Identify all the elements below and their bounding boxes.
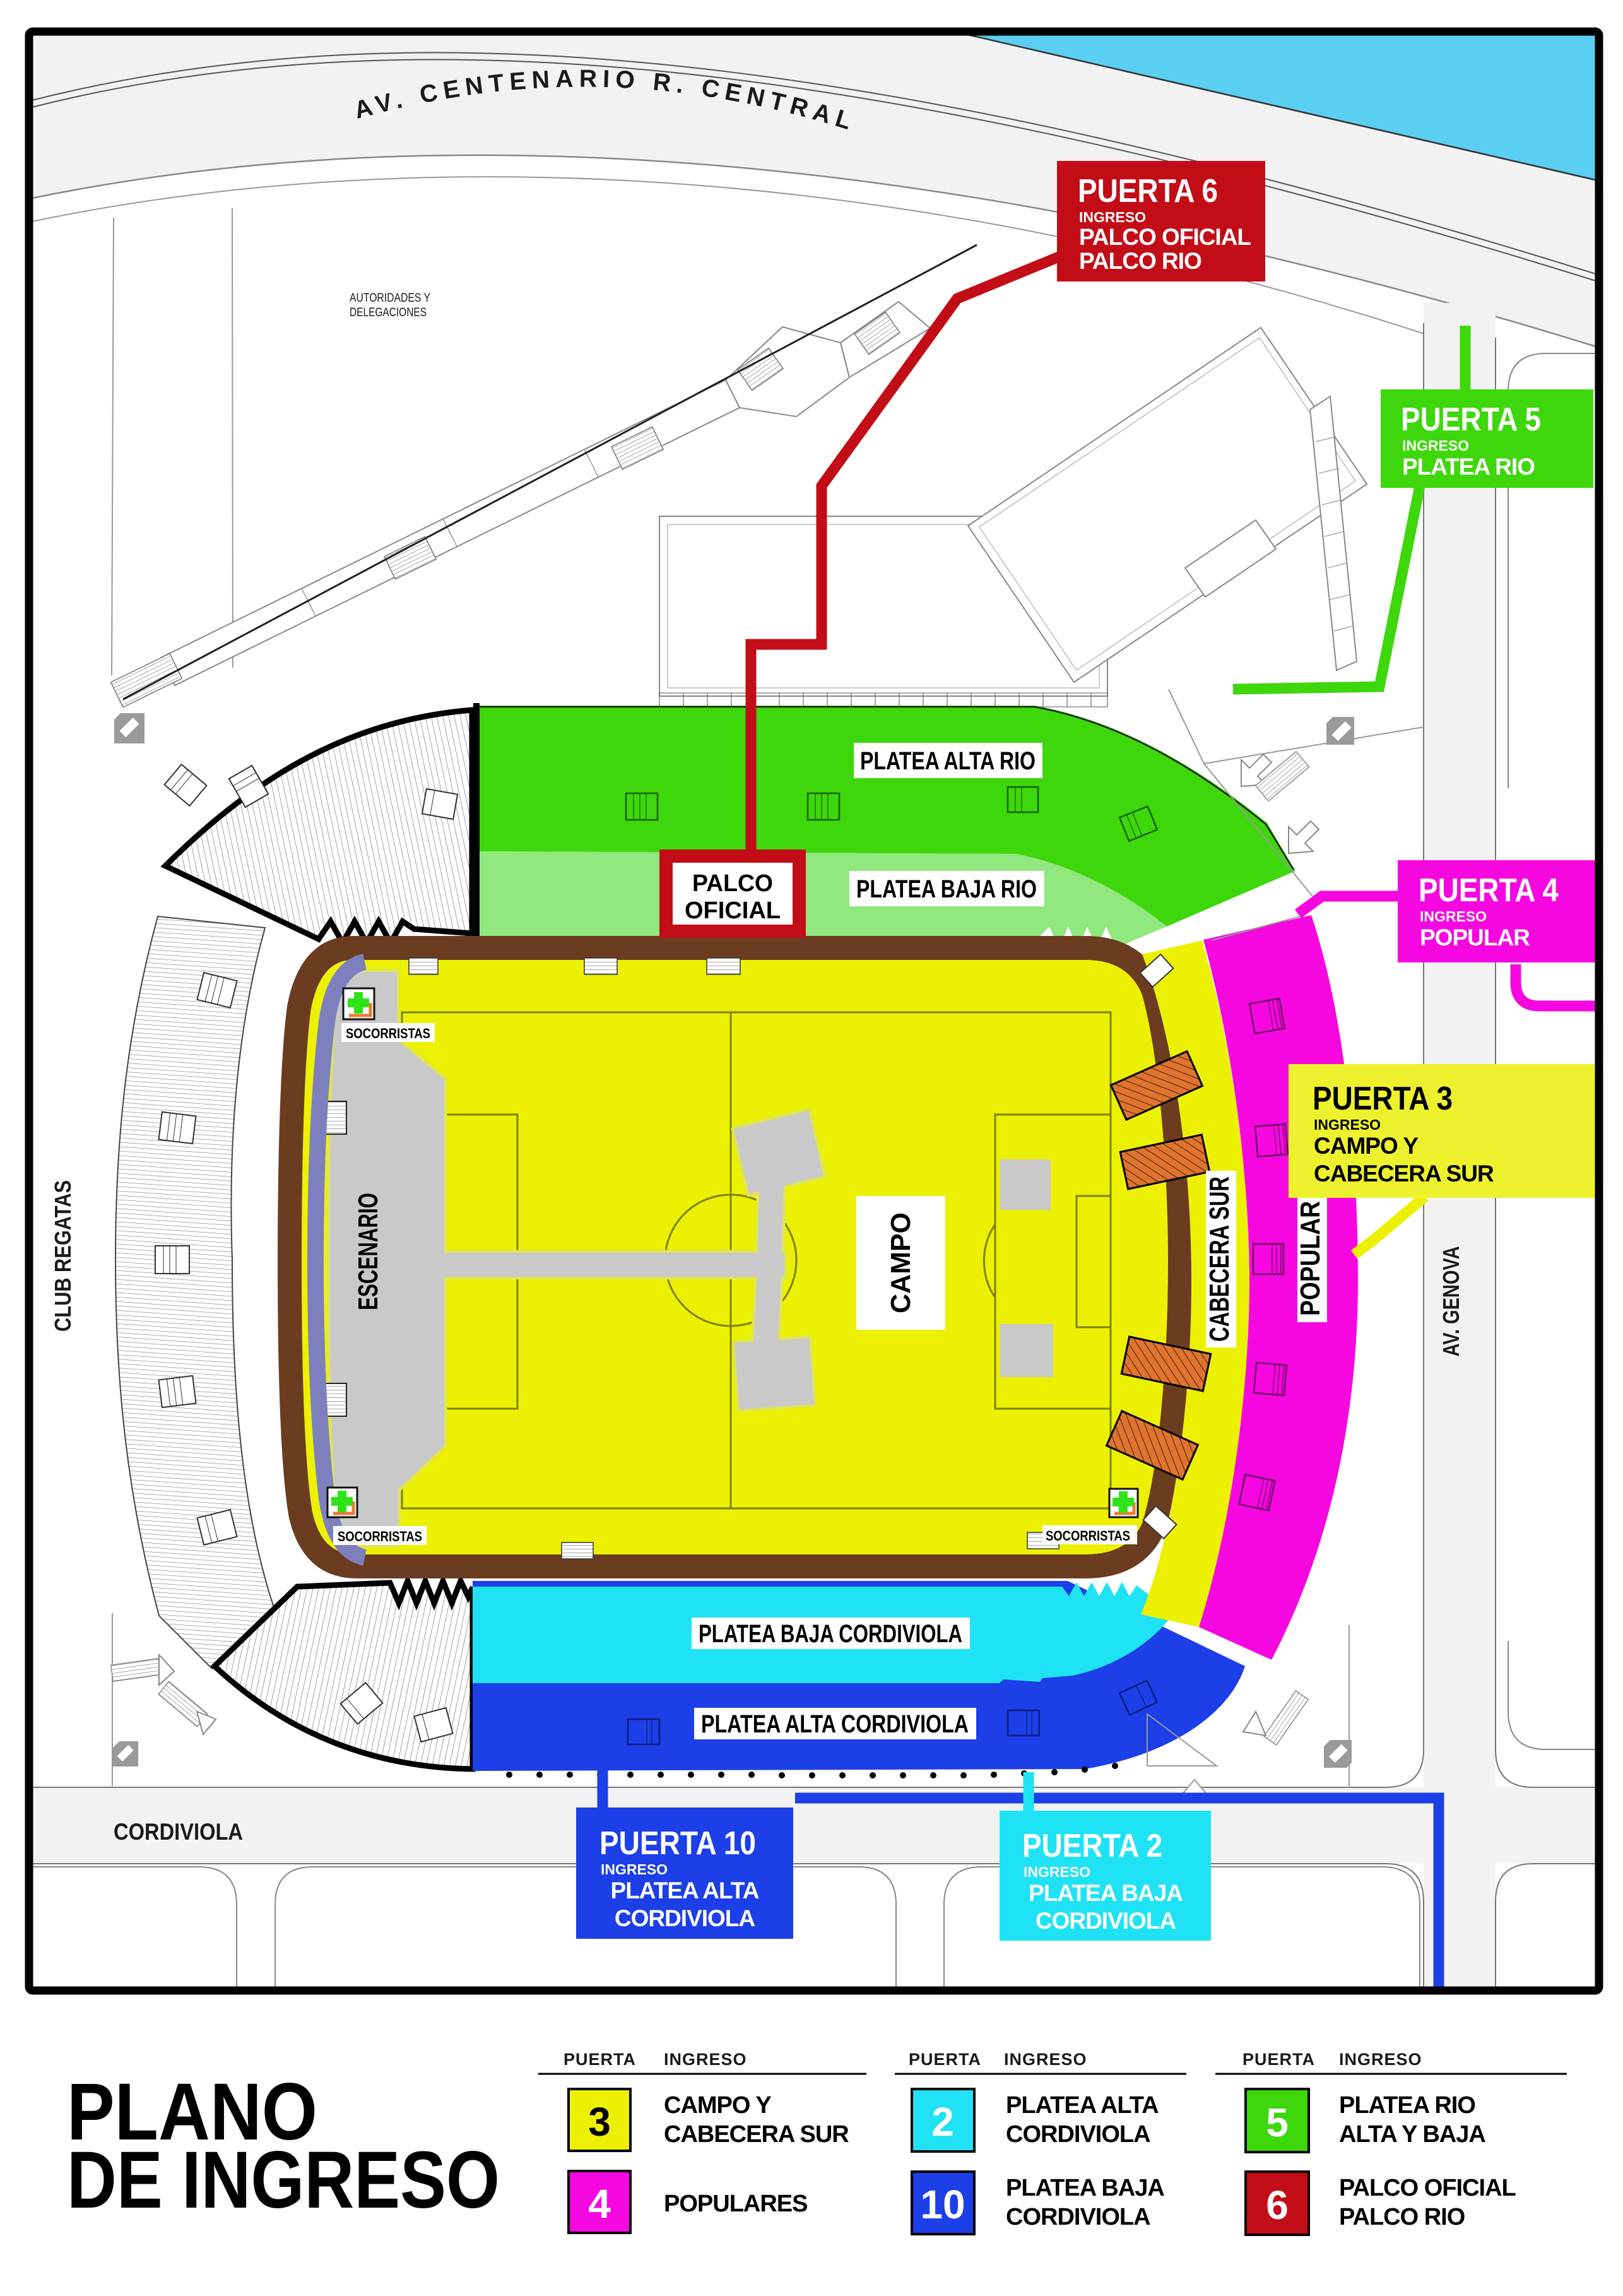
svg-text:AUTORIDADES Y: AUTORIDADES Y [350, 292, 430, 305]
svg-text:INGRESO: INGRESO [1004, 2050, 1087, 2069]
svg-text:CORDIVIOLA: CORDIVIOLA [114, 1819, 243, 1845]
svg-text:ESCENARIO: ESCENARIO [353, 1193, 384, 1310]
svg-text:CORDIVIOLA: CORDIVIOLA [1006, 2121, 1150, 2148]
svg-text:CABECERA SUR: CABECERA SUR [664, 2121, 849, 2148]
svg-text:INGRESO: INGRESO [1339, 2050, 1422, 2069]
svg-text:INGRESO: INGRESO [1314, 1116, 1381, 1133]
svg-text:SOCORRISTAS: SOCORRISTAS [346, 1026, 430, 1041]
svg-text:PALCO OFICIAL: PALCO OFICIAL [1079, 224, 1251, 250]
svg-text:CORDIVIOLA: CORDIVIOLA [1036, 1908, 1176, 1934]
svg-text:CABECERA SUR: CABECERA SUR [1314, 1161, 1494, 1186]
svg-text:2: 2 [931, 2099, 954, 2145]
svg-text:DE INGRESO: DE INGRESO [67, 2135, 500, 2225]
svg-text:PALCO RIO: PALCO RIO [1079, 248, 1201, 274]
svg-text:POPULARES: POPULARES [664, 2191, 807, 2217]
svg-text:10: 10 [920, 2182, 965, 2227]
svg-text:3: 3 [588, 2099, 611, 2145]
svg-text:SOCORRISTAS: SOCORRISTAS [1046, 1528, 1130, 1544]
svg-text:INGRESO: INGRESO [1402, 437, 1469, 454]
svg-text:CLUB REGATAS: CLUB REGATAS [50, 1180, 76, 1332]
svg-text:CORDIVIOLA: CORDIVIOLA [1006, 2204, 1150, 2230]
svg-text:PLATEA RIO: PLATEA RIO [1402, 454, 1535, 480]
svg-text:5: 5 [1266, 2100, 1289, 2145]
svg-text:PALCO: PALCO [692, 870, 773, 897]
svg-text:PUERTA 10: PUERTA 10 [599, 1825, 756, 1862]
svg-text:CAMPO Y: CAMPO Y [664, 2092, 771, 2119]
svg-text:PALCO RIO: PALCO RIO [1339, 2204, 1465, 2230]
svg-text:INGRESO: INGRESO [1420, 908, 1487, 925]
svg-text:SOCORRISTAS: SOCORRISTAS [338, 1529, 422, 1544]
svg-text:PLATEA RIO: PLATEA RIO [1339, 2092, 1475, 2119]
svg-text:PLATEA ALTA: PLATEA ALTA [611, 1878, 759, 1903]
svg-text:INGRESO: INGRESO [601, 1861, 668, 1878]
svg-text:PLATEA BAJA CORDIVIOLA: PLATEA BAJA CORDIVIOLA [699, 1620, 962, 1648]
svg-text:PUERTA: PUERTA [1242, 2050, 1315, 2069]
svg-text:PUERTA 5: PUERTA 5 [1401, 401, 1541, 438]
svg-text:PUERTA 3: PUERTA 3 [1313, 1080, 1453, 1117]
svg-text:INGRESO: INGRESO [1079, 209, 1146, 225]
svg-text:POPULAR: POPULAR [1295, 1201, 1326, 1316]
svg-text:PLATEA BAJA RIO: PLATEA BAJA RIO [856, 875, 1037, 903]
svg-text:POPULAR: POPULAR [1420, 925, 1530, 950]
svg-text:PUERTA 2: PUERTA 2 [1022, 1828, 1162, 1864]
svg-text:PLATEA ALTA: PLATEA ALTA [1006, 2092, 1159, 2119]
svg-text:PUERTA 4: PUERTA 4 [1419, 872, 1559, 909]
svg-text:PLATEA BAJA: PLATEA BAJA [1029, 1880, 1183, 1906]
svg-text:DELEGACIONES: DELEGACIONES [350, 306, 427, 319]
svg-text:INGRESO: INGRESO [664, 2050, 747, 2069]
svg-text:PUERTA: PUERTA [564, 2050, 636, 2069]
svg-text:CORDIVIOLA: CORDIVIOLA [615, 1905, 755, 1931]
svg-text:PALCO OFICIAL: PALCO OFICIAL [1339, 2175, 1516, 2201]
svg-text:PLATEA ALTA CORDIVIOLA: PLATEA ALTA CORDIVIOLA [701, 1710, 969, 1738]
svg-text:PUERTA: PUERTA [909, 2050, 981, 2069]
svg-text:6: 6 [1266, 2182, 1289, 2228]
svg-text:OFICIAL: OFICIAL [685, 897, 781, 924]
svg-text:INGRESO: INGRESO [1024, 1864, 1090, 1880]
svg-text:PLATEA ALTA RIO: PLATEA ALTA RIO [860, 747, 1036, 775]
svg-text:CAMPO Y: CAMPO Y [1314, 1133, 1419, 1159]
svg-text:4: 4 [588, 2181, 611, 2227]
svg-text:AV. GENOVA: AV. GENOVA [1438, 1246, 1464, 1357]
svg-text:PUERTA 6: PUERTA 6 [1078, 173, 1218, 210]
svg-text:PLATEA BAJA: PLATEA BAJA [1006, 2175, 1164, 2201]
svg-text:ALTA Y BAJA: ALTA Y BAJA [1339, 2121, 1485, 2148]
svg-text:CAMPO: CAMPO [885, 1212, 916, 1313]
svg-text:CABECERA SUR: CABECERA SUR [1204, 1176, 1235, 1342]
